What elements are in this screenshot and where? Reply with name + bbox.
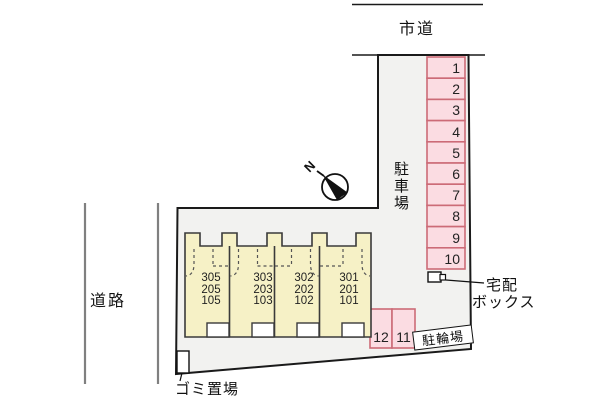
room-number: 101 <box>327 296 371 308</box>
garbage-area-label: ゴミ置場 <box>175 378 239 399</box>
delivery-box-label-line2: ボックス <box>472 291 536 312</box>
unit-room-numbers: 303 203 103 <box>241 273 285 308</box>
parking-stall-number: 9 <box>427 229 460 247</box>
room-number: 105 <box>189 296 233 308</box>
unit-room-numbers: 302 202 102 <box>282 273 326 308</box>
room-number: 102 <box>282 296 326 308</box>
room-number: 301 <box>327 273 371 285</box>
parking-stall-number: 8 <box>427 207 460 225</box>
parking-stall-number: 2 <box>427 80 460 98</box>
bike-stall-number: 12 <box>370 329 392 346</box>
parking-stall-number: 5 <box>427 144 460 162</box>
parking-stall-number: 1 <box>427 59 460 77</box>
room-number: 303 <box>241 273 285 285</box>
room-number: 103 <box>241 296 285 308</box>
road-label: 道路 <box>90 287 126 311</box>
room-number: 305 <box>189 273 233 285</box>
parking-stall-number: 7 <box>427 186 460 204</box>
plan-drawing <box>0 0 600 400</box>
parking-stall-number: 10 <box>427 250 460 268</box>
parking-lot-label: 駐車場 <box>393 161 408 212</box>
parking-stall-number: 3 <box>427 101 460 119</box>
parking-stall-number: 6 <box>427 165 460 183</box>
parking-stall-number: 4 <box>427 123 460 141</box>
city-road-label: 市道 <box>399 15 435 39</box>
unit-room-numbers: 301 201 101 <box>327 273 371 308</box>
unit-room-numbers: 305 205 105 <box>189 273 233 308</box>
bike-stall-number: 11 <box>392 329 415 346</box>
site-plan: 市道 道路 駐車場 宅配 ボックス ゴミ置場 駐輪場 N 1 2 3 4 5 6… <box>0 0 600 400</box>
room-number: 302 <box>282 273 326 285</box>
garbage-box-icon <box>177 351 189 381</box>
north-arrow-icon <box>317 171 348 200</box>
